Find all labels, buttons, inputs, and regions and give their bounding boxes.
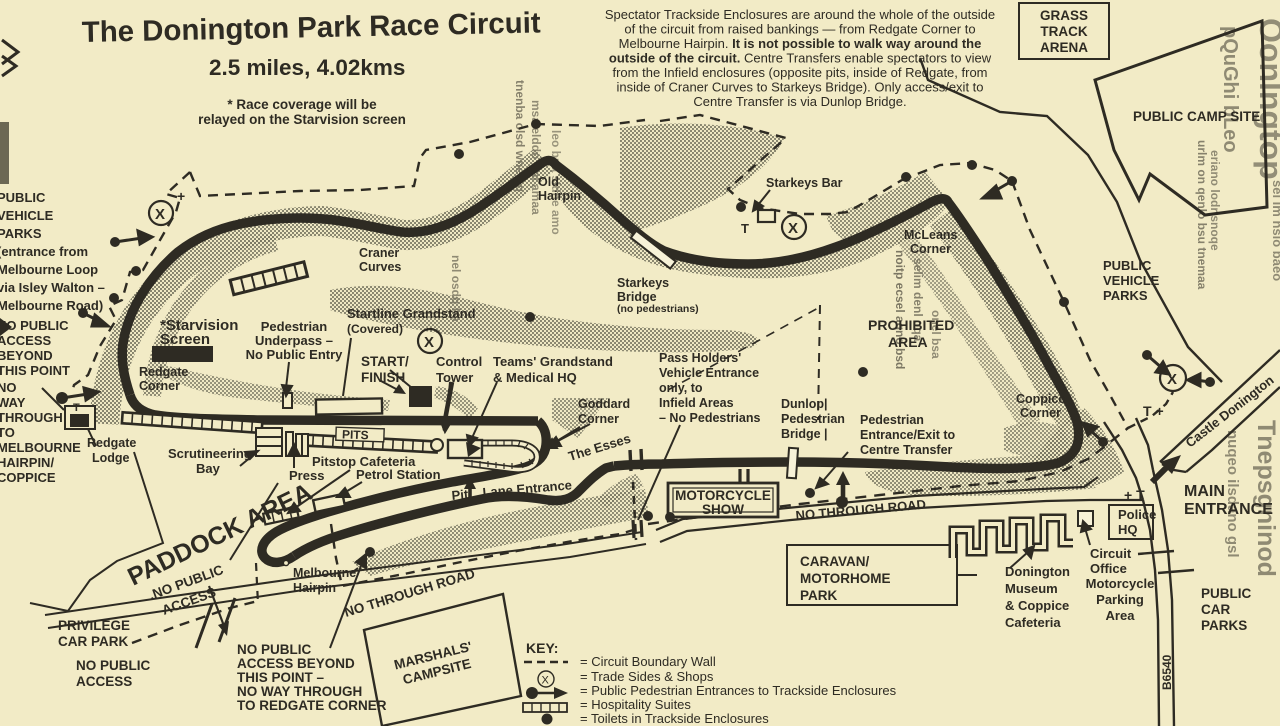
svg-text:NO PUBLIC: NO PUBLIC — [0, 318, 69, 333]
svg-text:Melbourne: Melbourne — [293, 566, 356, 580]
svg-text:THIS POINT –: THIS POINT – — [237, 670, 325, 685]
svg-text:Vehicle Entrance: Vehicle Entrance — [659, 366, 759, 380]
svg-text:(entrance from: (entrance from — [0, 244, 88, 259]
svg-text:Melbourne Road): Melbourne Road) — [0, 298, 103, 313]
svg-text:Melbourne Loop: Melbourne Loop — [0, 262, 98, 277]
svg-text:Corner: Corner — [910, 242, 951, 256]
svg-text:MOTORCYCLE: MOTORCYCLE — [675, 488, 771, 503]
svg-text:relayed on the Starvision scre: relayed on the Starvision screen — [198, 112, 406, 127]
svg-text:eriano lodr snoqe: eriano lodr snoqe — [1208, 150, 1222, 251]
svg-text:= Circuit Boundary Wall: = Circuit Boundary Wall — [580, 654, 716, 669]
svg-text:Police: Police — [1118, 507, 1156, 522]
svg-text:FINISH: FINISH — [361, 370, 405, 385]
svg-text:Motorcycle: Motorcycle — [1086, 576, 1155, 591]
svg-text:only, to: only, to — [659, 381, 703, 395]
svg-text:CAR PARK: CAR PARK — [58, 634, 128, 649]
svg-text:Pedestrian: Pedestrian — [781, 412, 845, 426]
svg-text:Pedestrian: Pedestrian — [261, 319, 328, 334]
svg-text:Area: Area — [1106, 608, 1136, 623]
svg-text:Parking: Parking — [1096, 592, 1144, 607]
svg-text:VEHICLE: VEHICLE — [0, 208, 54, 223]
svg-text:inside of Craner Curves to Sta: inside of Craner Curves to Starkeys Brid… — [616, 80, 983, 95]
svg-text:No Public Entry: No Public Entry — [246, 347, 344, 362]
svg-text:Startline Grandstand: Startline Grandstand — [347, 306, 476, 321]
svg-text:WAY: WAY — [0, 395, 26, 410]
svg-text:Spectator Trackside Enclosures: Spectator Trackside Enclosures are aroun… — [605, 7, 995, 22]
svg-text:TO REDGATE CORNER: TO REDGATE CORNER — [237, 698, 387, 713]
svg-text:Donington: Donington — [1005, 564, 1070, 579]
svg-text:Corner: Corner — [1020, 406, 1061, 420]
svg-text:HAIRPIN/: HAIRPIN/ — [0, 455, 54, 470]
svg-text:PUBLIC CAMP SITE: PUBLIC CAMP SITE — [1133, 109, 1260, 124]
svg-text:Petrol Station: Petrol Station — [356, 467, 441, 482]
svg-text:Hairpin: Hairpin — [538, 189, 581, 203]
svg-text:NO PUBLIC: NO PUBLIC — [237, 642, 312, 657]
svg-text:PARKS: PARKS — [0, 226, 42, 241]
svg-text:Bridge: Bridge — [617, 290, 657, 304]
svg-text:MAIN: MAIN — [1184, 483, 1225, 500]
svg-text:T: T — [741, 221, 749, 236]
svg-text:ARENA: ARENA — [1040, 40, 1088, 55]
svg-text:+ T: + T — [1124, 487, 1145, 503]
svg-text:Bay: Bay — [196, 461, 221, 476]
svg-text:of the circuit from raised ban: of the circuit from raised bankings — fr… — [624, 22, 975, 37]
svg-text:Pit: Pit — [451, 487, 470, 503]
svg-text:pQuGhi bLeo: pQuGhi bLeo — [1219, 26, 1241, 153]
svg-text:Circuit: Circuit — [1090, 546, 1132, 561]
svg-text:MOTORHOME: MOTORHOME — [800, 571, 891, 586]
svg-text:Cafeteria: Cafeteria — [1005, 615, 1061, 630]
svg-text:= Toilets in Trackside Enclosu: = Toilets in Trackside Enclosures — [580, 711, 769, 726]
svg-text:COPPICE: COPPICE — [0, 470, 56, 485]
svg-text:Lodge: Lodge — [92, 451, 130, 465]
svg-text:Museum: Museum — [1005, 581, 1058, 596]
svg-text:MELBOURNE: MELBOURNE — [0, 440, 81, 455]
svg-text:noitp ecsel aqno bsd: noitp ecsel aqno bsd — [893, 250, 907, 369]
svg-text:Underpass –: Underpass – — [255, 333, 333, 348]
svg-text:from the Infield enclosures (o: from the Infield enclosures (opposite pi… — [612, 65, 987, 80]
svg-text:Starkeys: Starkeys — [617, 276, 669, 290]
svg-text:& Medical HQ: & Medical HQ — [493, 370, 577, 385]
svg-text:GRASS: GRASS — [1040, 8, 1088, 23]
svg-text:= Trade Sides & Shops: = Trade Sides & Shops — [580, 669, 714, 684]
svg-text:& Coppice: & Coppice — [1005, 598, 1069, 613]
svg-text:(Covered): (Covered) — [347, 322, 403, 336]
svg-text:CAR: CAR — [1201, 602, 1230, 617]
svg-text:PUBLIC: PUBLIC — [1103, 258, 1152, 273]
svg-text:KEY:: KEY: — [526, 640, 558, 656]
svg-text:BEYOND: BEYOND — [0, 348, 53, 363]
svg-text:McLeans: McLeans — [904, 228, 958, 242]
svg-text:ACCESS: ACCESS — [76, 674, 132, 689]
svg-text:Office: Office — [1090, 561, 1127, 576]
svg-text:PARKS: PARKS — [1201, 618, 1247, 633]
svg-text:NO PUBLIC: NO PUBLIC — [76, 658, 151, 673]
svg-text:X: X — [424, 334, 434, 351]
svg-text:SHOW: SHOW — [702, 502, 744, 517]
svg-text:CARAVAN/: CARAVAN/ — [800, 554, 869, 569]
svg-text:Dunlop|: Dunlop| — [781, 397, 828, 411]
svg-text:(no pedestrians): (no pedestrians) — [617, 303, 699, 315]
svg-text:sel im nslo baeo: sel im nslo baeo — [1270, 180, 1280, 281]
svg-text:T +: T + — [1143, 403, 1164, 419]
svg-text:PARK: PARK — [800, 588, 838, 603]
svg-text:THIS POINT: THIS POINT — [0, 363, 70, 378]
svg-text:Redgate: Redgate — [139, 365, 188, 379]
svg-text:Tower: Tower — [436, 370, 473, 385]
svg-text:PRIVILEGE: PRIVILEGE — [58, 618, 130, 633]
svg-text:ACCESS: ACCESS — [0, 333, 52, 348]
svg-text:PARKS: PARKS — [1103, 288, 1148, 303]
svg-text:TO: TO — [0, 425, 15, 440]
svg-text:Centre Transfer: Centre Transfer — [860, 443, 953, 457]
svg-text:PUBLIC: PUBLIC — [0, 190, 46, 205]
svg-text:Centre Transfer is via Dunlop: Centre Transfer is via Dunlop Bridge. — [693, 94, 906, 109]
svg-text:Starkeys Bar: Starkeys Bar — [766, 176, 843, 190]
svg-text:Screen: Screen — [160, 331, 210, 348]
svg-text:+: + — [177, 188, 185, 204]
svg-text:Bridge |: Bridge | — [781, 427, 828, 441]
svg-text:Pass Holders': Pass Holders' — [659, 351, 741, 365]
svg-text:– No Pedestrians: – No Pedestrians — [659, 411, 760, 425]
svg-text:VEHICLE: VEHICLE — [1103, 273, 1160, 288]
svg-text:ENTRANCE: ENTRANCE — [1184, 501, 1273, 518]
svg-text:Tnepsgninod: Tnepsgninod — [1252, 420, 1280, 577]
svg-text:Corner: Corner — [139, 379, 180, 393]
svg-text:THROUGH: THROUGH — [0, 410, 63, 425]
svg-text:Craner: Craner — [359, 246, 399, 260]
svg-text:TRACK: TRACK — [1040, 24, 1087, 39]
svg-text:Old: Old — [538, 175, 559, 189]
svg-text:X: X — [155, 206, 165, 223]
svg-text:Goddard: Goddard — [578, 397, 630, 411]
svg-text:Press: Press — [289, 468, 324, 483]
svg-text:nuqeo ilsdano gsl: nuqeo ilsdano gsl — [1224, 430, 1241, 558]
svg-text:Hairpin: Hairpin — [293, 581, 336, 595]
svg-text:ACCESS BEYOND: ACCESS BEYOND — [237, 656, 355, 671]
svg-text:via Isley Walton –: via Isley Walton – — [0, 280, 105, 295]
svg-text:PUBLIC: PUBLIC — [1201, 586, 1252, 601]
svg-text:NO: NO — [0, 380, 17, 395]
svg-text:Redgate: Redgate — [87, 436, 136, 450]
svg-text:Infield Areas: Infield Areas — [659, 396, 734, 410]
svg-text:2.5 miles, 4.02kms: 2.5 miles, 4.02kms — [209, 55, 405, 80]
svg-text:NO WAY THROUGH: NO WAY THROUGH — [237, 684, 362, 699]
svg-text:PROHIBITED: PROHIBITED — [868, 317, 954, 333]
svg-text:Pedestrian: Pedestrian — [860, 413, 924, 427]
svg-text:outside of the circuit. Centre: outside of the circuit. Centre Transfers… — [609, 51, 992, 66]
svg-text:T: T — [73, 402, 80, 414]
svg-text:AREA: AREA — [888, 334, 928, 350]
svg-text:X: X — [542, 675, 550, 687]
svg-text:Curves: Curves — [359, 260, 401, 274]
svg-text:Corner: Corner — [578, 412, 619, 426]
svg-text:= Hospitality Suites: = Hospitality Suites — [580, 697, 691, 712]
svg-text:START/: START/ — [361, 354, 409, 369]
svg-text:Scrutineering: Scrutineering — [168, 446, 252, 461]
svg-text:= Public Pedestrian Entrances: = Public Pedestrian Entrances to Tracksi… — [580, 683, 897, 698]
svg-text:Coppice: Coppice — [1016, 392, 1065, 406]
svg-text:HQ: HQ — [1118, 522, 1138, 537]
svg-text:Entrance/Exit to: Entrance/Exit to — [860, 428, 956, 442]
svg-text:Melbourne Hairpin. It is not p: Melbourne Hairpin. It is not possible to… — [619, 36, 982, 51]
svg-text:B6540: B6540 — [1160, 654, 1174, 690]
svg-text:PITS: PITS — [342, 427, 369, 442]
svg-text:X: X — [788, 220, 798, 237]
svg-text:Teams' Grandstand: Teams' Grandstand — [493, 354, 613, 369]
svg-text:Control: Control — [436, 354, 482, 369]
svg-text:* Race coverage will be: * Race coverage will be — [227, 97, 377, 112]
